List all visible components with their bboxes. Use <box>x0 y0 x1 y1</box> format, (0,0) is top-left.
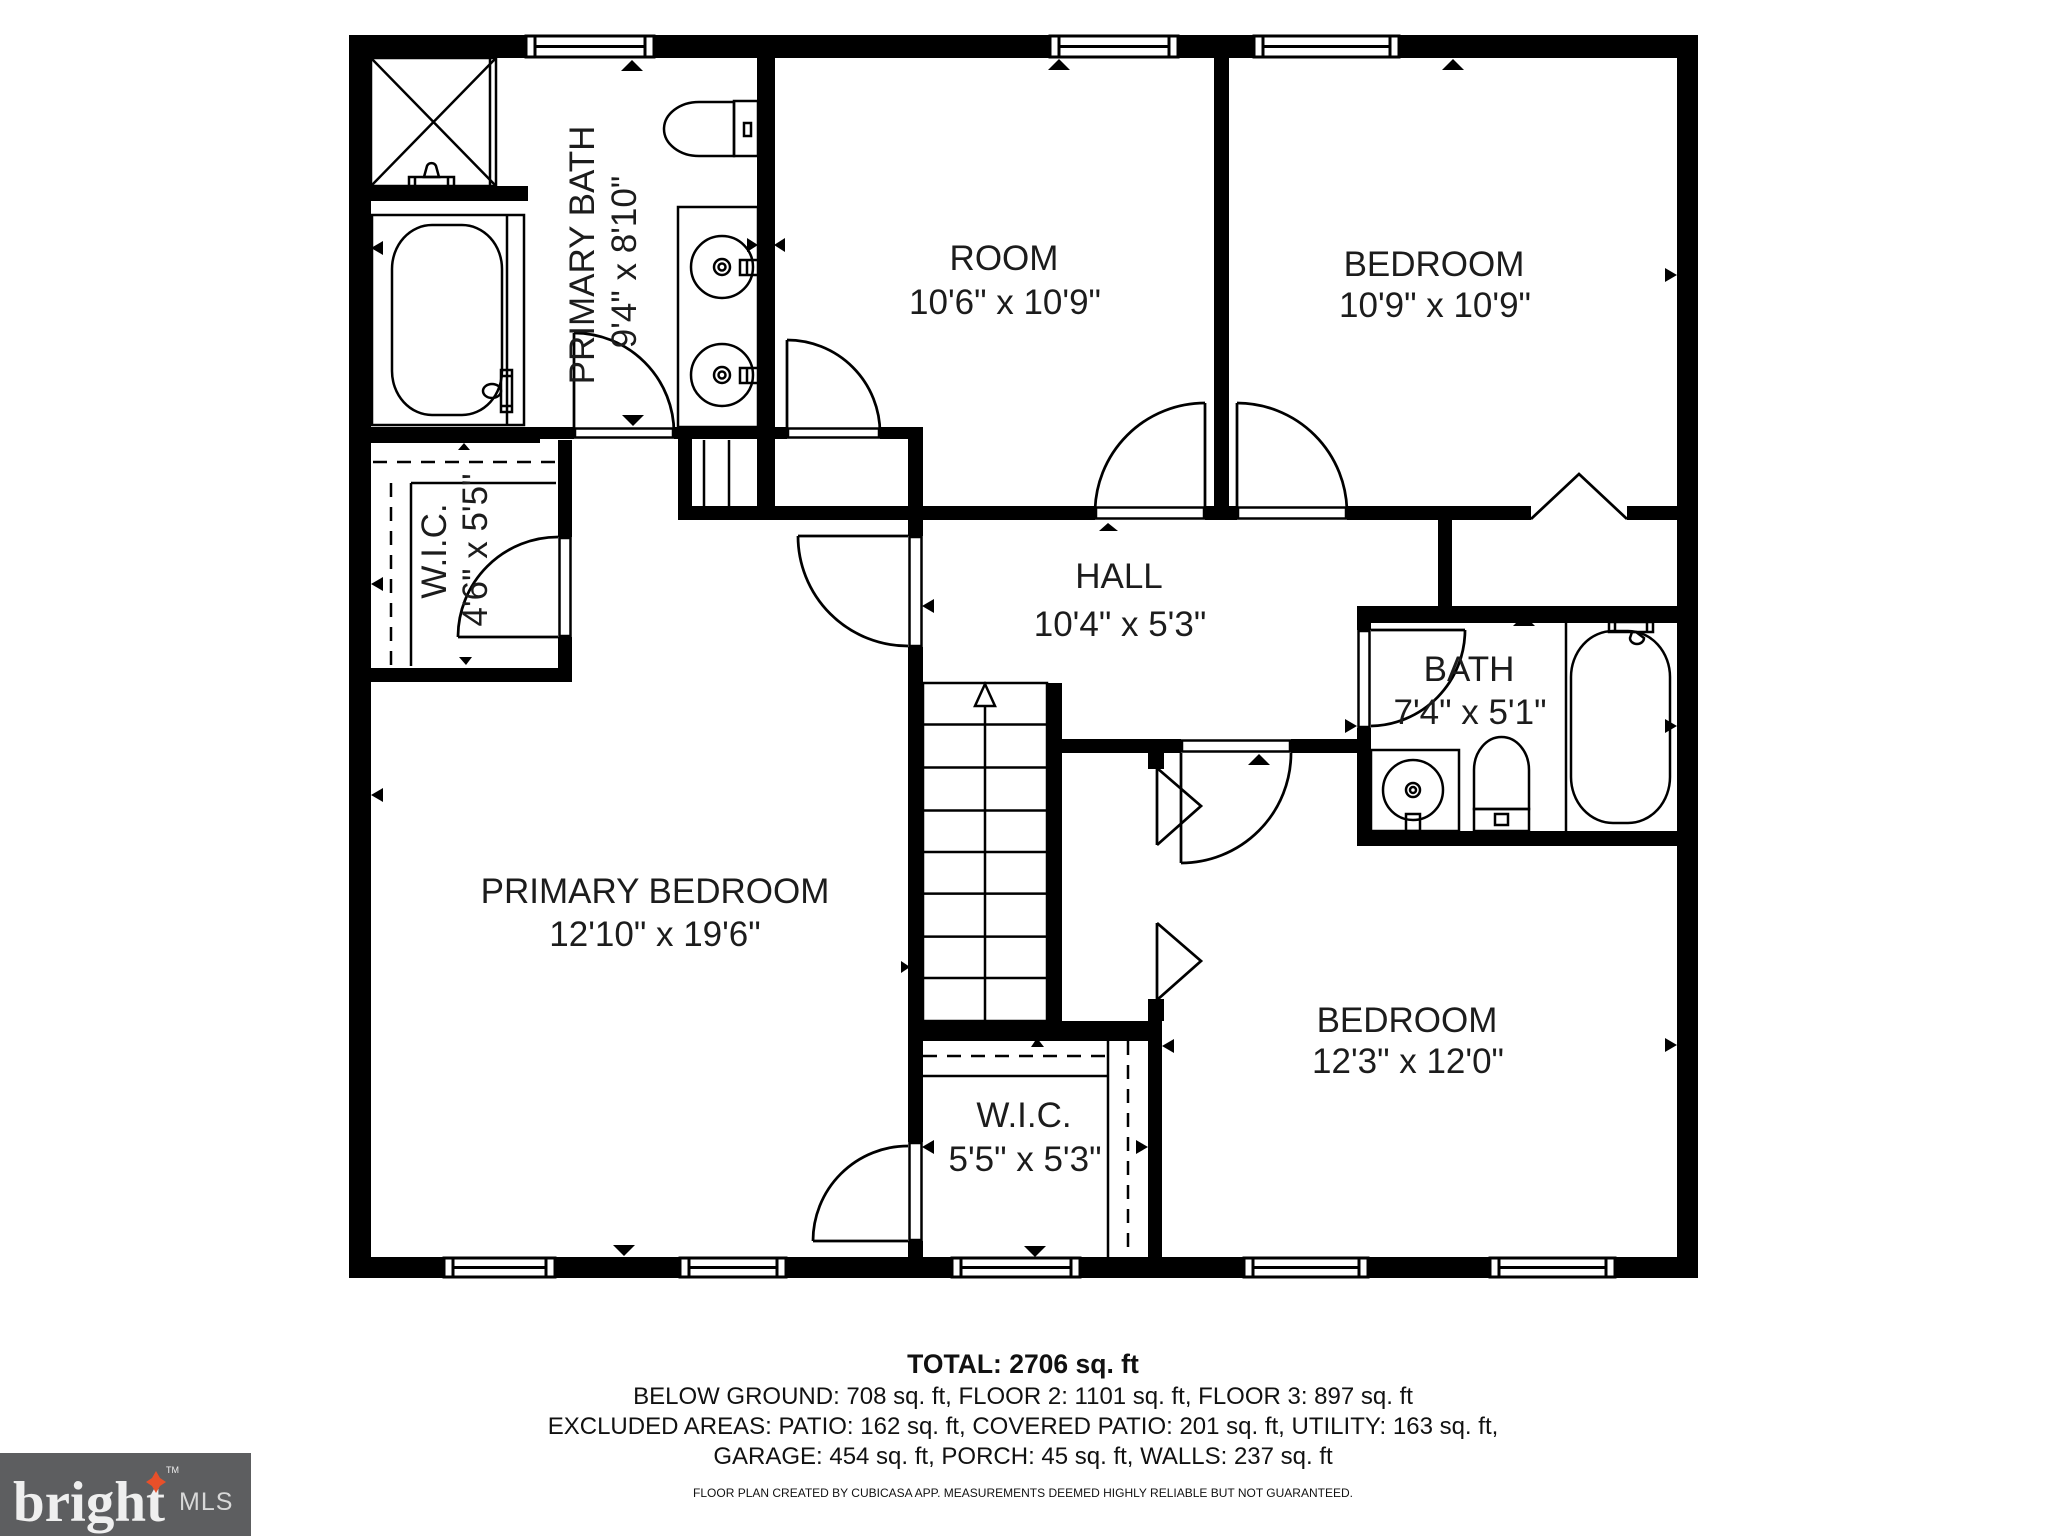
svg-text:PRIMARY BATH: PRIMARY BATH <box>563 126 602 385</box>
svg-text:BEDROOM: BEDROOM <box>1317 1001 1498 1040</box>
svg-text:4'6" x 5'5": 4'6" x 5'5" <box>456 473 495 626</box>
svg-text:W.I.C.: W.I.C. <box>976 1096 1071 1135</box>
svg-text:10'9" x 10'9": 10'9" x 10'9" <box>1339 286 1531 325</box>
svg-text:12'3" x 12'0": 12'3" x 12'0" <box>1312 1042 1504 1081</box>
svg-text:GARAGE: 454 sq. ft, PORCH: 45: GARAGE: 454 sq. ft, PORCH: 45 sq. ft, WA… <box>713 1443 1333 1470</box>
svg-text:BATH: BATH <box>1424 650 1515 689</box>
svg-text:9'4" x 8'10": 9'4" x 8'10" <box>605 176 644 349</box>
svg-text:5'5" x 5'3": 5'5" x 5'3" <box>948 1140 1101 1179</box>
svg-text:MLS: MLS <box>179 1488 233 1516</box>
svg-text:W.I.C.: W.I.C. <box>415 503 454 598</box>
svg-text:12'10" x 19'6": 12'10" x 19'6" <box>549 915 760 954</box>
svg-text:TM: TM <box>166 1465 179 1475</box>
svg-text:bright: bright <box>13 1471 165 1534</box>
svg-text:10'4" x 5'3": 10'4" x 5'3" <box>1034 605 1207 644</box>
svg-text:BELOW GROUND: 708 sq. ft, FLOO: BELOW GROUND: 708 sq. ft, FLOOR 2: 1101 … <box>633 1383 1413 1410</box>
svg-text:ROOM: ROOM <box>950 239 1059 278</box>
svg-text:HALL: HALL <box>1075 557 1163 596</box>
svg-text:FLOOR PLAN CREATED BY CUBICASA: FLOOR PLAN CREATED BY CUBICASA APP. MEAS… <box>693 1486 1353 1500</box>
svg-text:7'4" x 5'1": 7'4" x 5'1" <box>1393 693 1546 732</box>
svg-text:BEDROOM: BEDROOM <box>1344 245 1525 284</box>
svg-text:TOTAL: 2706 sq. ft: TOTAL: 2706 sq. ft <box>907 1349 1139 1379</box>
svg-text:PRIMARY BEDROOM: PRIMARY BEDROOM <box>481 872 830 911</box>
svg-text:EXCLUDED AREAS: PATIO: 162 sq.: EXCLUDED AREAS: PATIO: 162 sq. ft, COVER… <box>548 1413 1499 1440</box>
svg-text:10'6" x 10'9": 10'6" x 10'9" <box>909 283 1101 322</box>
